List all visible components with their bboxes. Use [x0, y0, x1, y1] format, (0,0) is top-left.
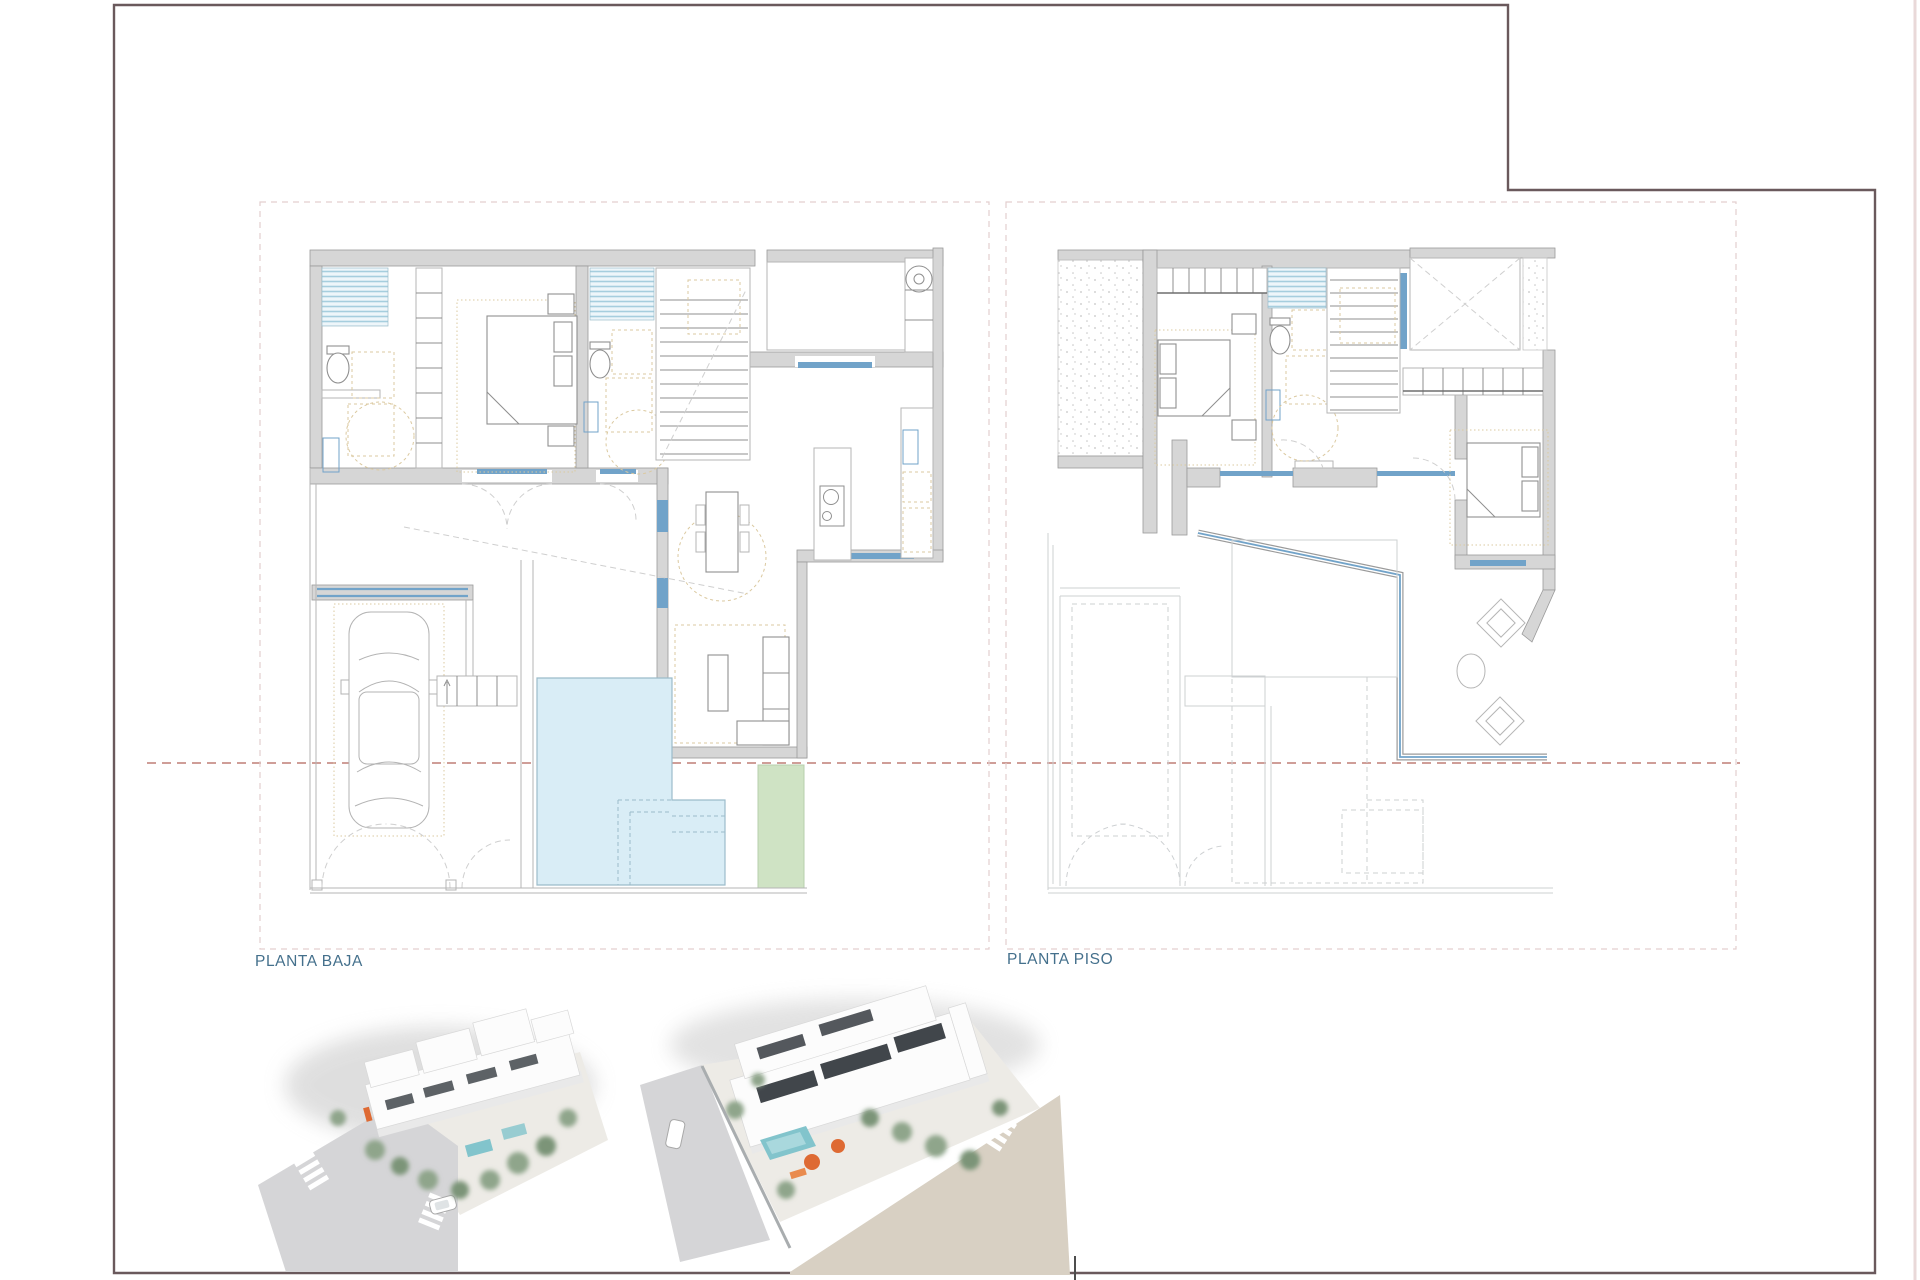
washbasin [323, 438, 339, 472]
counter-top [767, 262, 905, 350]
chair [740, 505, 749, 525]
pillow [1160, 344, 1176, 374]
orange-parasol [804, 1154, 820, 1170]
bedroom-2 [1155, 268, 1267, 465]
pillow [554, 356, 572, 386]
staircase [1327, 268, 1400, 413]
side-table [1457, 654, 1485, 688]
shower [322, 268, 388, 326]
window [1400, 273, 1407, 349]
void-over-living [1410, 258, 1547, 350]
living-area [675, 625, 789, 745]
porch-ghost [1185, 676, 1265, 706]
orange-parasol [831, 1139, 845, 1153]
staircase [656, 268, 750, 460]
architectural-drawing [0, 0, 1920, 1280]
nightstand [1232, 314, 1256, 334]
lawn-strip [758, 765, 804, 888]
window [657, 578, 668, 608]
car-mirror [341, 680, 349, 694]
kitchen [814, 408, 933, 560]
washbasin-counter [322, 390, 380, 398]
toilet [1270, 326, 1290, 354]
floor-plan-sheet: PLANTA BAJA PLANTA PISO [0, 0, 1920, 1280]
pillow [1522, 481, 1538, 511]
ground-floor-label: PLANTA BAJA [255, 953, 363, 971]
car-roof [359, 692, 419, 764]
ground-floor-ghost [1048, 533, 1553, 893]
window [1220, 471, 1293, 476]
chair [696, 505, 705, 525]
pillow [1522, 447, 1538, 477]
toilet [327, 353, 349, 383]
nightstand [1232, 420, 1256, 440]
window [657, 500, 668, 532]
pillow [554, 322, 572, 352]
laundry-room [767, 258, 933, 352]
upper-floor-plan [1006, 202, 1736, 949]
gate-swing [322, 824, 386, 888]
shower [1268, 268, 1326, 308]
lounge-armchair [1477, 599, 1525, 647]
upper-floor-label: PLANTA PISO [1007, 951, 1113, 969]
pillow [1160, 378, 1176, 408]
door-swing [1413, 458, 1455, 500]
plot-front-edge [310, 888, 807, 893]
window [1377, 471, 1455, 476]
lounge-armchair [1476, 697, 1524, 745]
coffee-table [708, 655, 728, 711]
pool-ghost [1232, 677, 1367, 883]
gate-swing [386, 824, 450, 888]
bedroom-1 [416, 268, 577, 472]
exterior-render-street-corner [258, 998, 608, 1272]
chair [696, 532, 705, 552]
dining-area [678, 492, 766, 601]
chair [740, 532, 749, 552]
car-mirror [429, 680, 437, 694]
shower [590, 268, 654, 320]
nightstand [548, 426, 574, 446]
dining-table [706, 492, 738, 572]
bedroom-3 [1403, 368, 1548, 545]
bathroom-1 [322, 268, 414, 472]
car [341, 612, 437, 828]
toilet [590, 350, 610, 378]
exterior-render-rear-terrace [640, 976, 1070, 1275]
door-leaf [1295, 461, 1333, 468]
swimming-pool [537, 678, 725, 885]
window [600, 469, 636, 474]
nightstand [548, 294, 574, 314]
window [1470, 560, 1526, 566]
sofa-corner [737, 721, 789, 745]
pedestrian-gate-swing [462, 840, 510, 888]
solarium-terrace [1058, 250, 1143, 468]
ground-floor-plan [260, 202, 989, 949]
window [798, 362, 872, 368]
door-swing-circle [346, 402, 414, 470]
